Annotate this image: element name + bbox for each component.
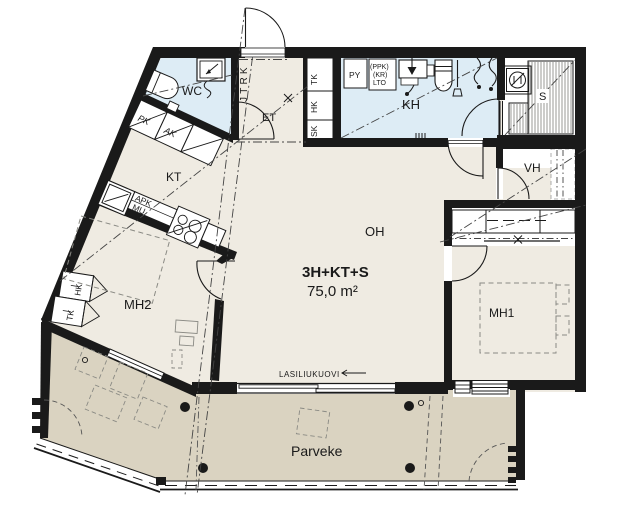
svg-text:Parveke: Parveke <box>291 443 343 459</box>
svg-text:WC: WC <box>182 84 202 98</box>
svg-text:HK: HK <box>72 283 84 297</box>
svg-text:TK: TK <box>309 74 319 85</box>
svg-text:75,0 m²: 75,0 m² <box>307 283 358 300</box>
svg-text:VH: VH <box>524 161 541 175</box>
svg-text:S: S <box>539 91 546 103</box>
svg-text:KH: KH <box>402 97 420 112</box>
svg-text:LASILIUKUOVI: LASILIUKUOVI <box>279 370 340 379</box>
svg-text:LTO: LTO <box>373 80 387 87</box>
svg-text:(KR): (KR) <box>373 72 387 79</box>
svg-text:MH1: MH1 <box>489 306 515 320</box>
svg-text:HK: HK <box>309 101 319 113</box>
svg-text:SK: SK <box>309 125 319 137</box>
svg-text:PY: PY <box>349 70 361 80</box>
svg-text:KT: KT <box>166 170 182 184</box>
svg-text:ET: ET <box>262 112 276 124</box>
svg-text:JTRK: JTRK <box>239 64 250 102</box>
svg-text:OH: OH <box>365 224 385 239</box>
svg-text:3H+KT+S: 3H+KT+S <box>302 264 369 281</box>
svg-text:MH2: MH2 <box>124 297 151 312</box>
svg-text:(PPK): (PPK) <box>370 64 389 71</box>
